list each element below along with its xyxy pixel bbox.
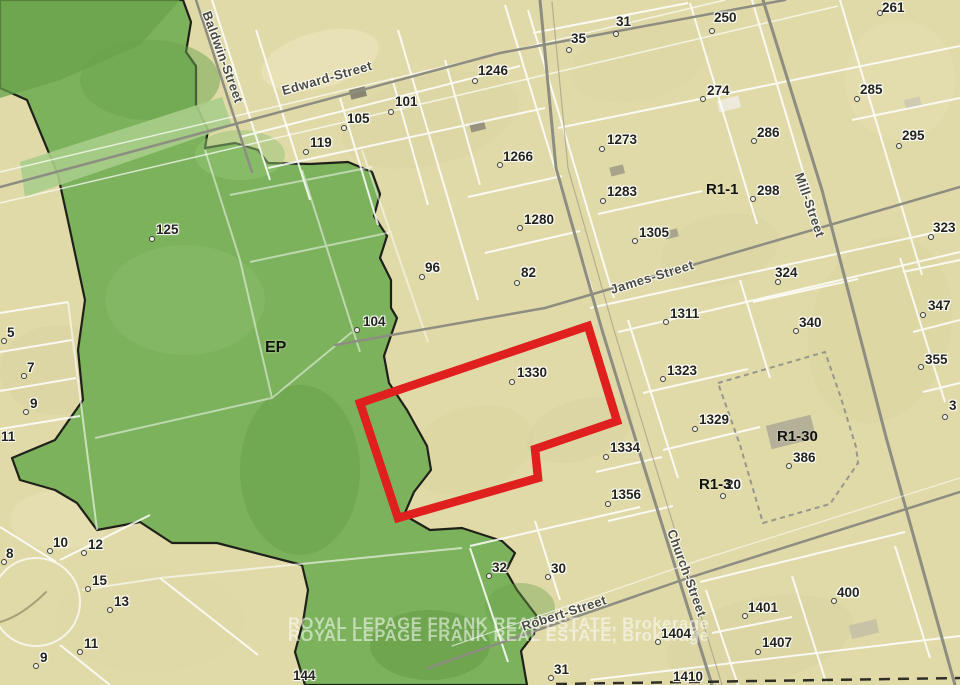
parcel-marker-dot	[107, 607, 113, 613]
parcel-number-10: 10	[53, 536, 68, 550]
parcel-number-1311: 1311	[670, 307, 699, 321]
parcel-number-274: 274	[707, 84, 730, 98]
parcel-marker-dot	[655, 639, 661, 645]
parcel-marker-dot	[896, 143, 902, 149]
parcel-marker-dot	[720, 493, 726, 499]
parcel-number-1329: 1329	[699, 413, 729, 427]
parcel-marker-dot	[23, 409, 29, 415]
parcel-marker-dot	[303, 149, 309, 155]
parcel-number-15: 15	[92, 574, 107, 588]
parcel-marker-dot	[928, 234, 934, 240]
zone-label-r1-3: R1-3	[699, 477, 732, 492]
parcel-number-144: 144	[293, 669, 316, 683]
parcel-number-1404: 1404	[661, 627, 691, 641]
parcel-number-1283: 1283	[607, 185, 637, 199]
parcel-marker-dot	[47, 548, 53, 554]
parcel-marker-dot	[786, 463, 792, 469]
parcel-number-285: 285	[860, 83, 883, 97]
label-layer: ROYAL LEPAGE FRANK REAL ESTATE, Brokerag…	[0, 0, 960, 685]
parcel-marker-dot	[877, 10, 883, 16]
parcel-marker-dot	[942, 414, 948, 420]
parcel-number-1401: 1401	[748, 601, 778, 615]
parcel-marker-dot	[21, 373, 27, 379]
parcel-marker-dot	[599, 146, 605, 152]
parcel-number-324: 324	[775, 266, 798, 280]
parcel-number-298: 298	[757, 184, 780, 198]
parcel-number-3: 3	[949, 399, 957, 413]
parcel-number-9: 9	[40, 651, 48, 665]
parcel-marker-dot	[854, 96, 860, 102]
parcel-marker-dot	[1, 338, 7, 344]
zone-label-r1-30: R1-30	[777, 429, 818, 444]
watermark-line-2: ROYAL LEPAGE FRANK REAL ESTATE, Brokerag…	[288, 628, 709, 645]
parcel-marker-dot	[472, 78, 478, 84]
parcel-number-340: 340	[799, 316, 822, 330]
parcel-marker-dot	[632, 238, 638, 244]
parcel-number-7: 7	[27, 361, 35, 375]
parcel-number-105: 105	[347, 112, 370, 126]
parcel-marker-dot	[603, 454, 609, 460]
parcel-marker-dot	[85, 586, 91, 592]
parcel-number-9: 9	[30, 397, 38, 411]
parcel-number-11: 11	[1, 430, 15, 444]
parcel-marker-dot	[545, 574, 551, 580]
parcel-marker-dot	[514, 280, 520, 286]
parcel-marker-dot	[775, 279, 781, 285]
parcel-marker-dot	[354, 327, 360, 333]
parcel-number-386: 386	[793, 451, 816, 465]
parcel-number-1266: 1266	[503, 150, 533, 164]
parcel-number-1330: 1330	[517, 366, 547, 380]
parcel-marker-dot	[692, 426, 698, 432]
parcel-number-1323: 1323	[667, 364, 697, 378]
map-canvas[interactable]: ROYAL LEPAGE FRANK REAL ESTATE, Brokerag…	[0, 0, 960, 685]
parcel-number-125: 125	[156, 223, 179, 237]
parcel-marker-dot	[388, 109, 394, 115]
street-label-mill-street: Mill-Street	[793, 171, 827, 239]
parcel-marker-dot	[742, 613, 748, 619]
parcel-number-295: 295	[902, 129, 925, 143]
parcel-number-119: 119	[310, 136, 332, 150]
parcel-number-1407: 1407	[762, 636, 792, 650]
parcel-number-13: 13	[114, 595, 129, 609]
parcel-marker-dot	[81, 550, 87, 556]
parcel-marker-dot	[700, 96, 706, 102]
parcel-number-250: 250	[714, 11, 737, 25]
parcel-number-32: 32	[492, 561, 507, 575]
parcel-number-82: 82	[521, 266, 536, 280]
parcel-number-355: 355	[925, 353, 948, 367]
parcel-marker-dot	[341, 125, 347, 131]
parcel-marker-dot	[605, 501, 611, 507]
parcel-marker-dot	[751, 138, 757, 144]
parcel-number-35: 35	[571, 32, 586, 46]
parcel-marker-dot	[709, 28, 715, 34]
parcel-number-1246: 1246	[478, 64, 508, 78]
parcel-number-1305: 1305	[639, 226, 669, 240]
parcel-number-286: 286	[757, 126, 780, 140]
parcel-number-261: 261	[882, 1, 905, 15]
parcel-number-347: 347	[928, 299, 951, 313]
zone-label-ep: EP	[265, 340, 286, 356]
parcel-marker-dot	[149, 236, 155, 242]
parcel-number-1356: 1356	[611, 488, 641, 502]
parcel-marker-dot	[750, 196, 756, 202]
parcel-number-11: 11	[84, 637, 98, 651]
zone-label-r1-1: R1-1	[706, 182, 739, 197]
parcel-marker-dot	[600, 198, 606, 204]
parcel-marker-dot	[613, 31, 619, 37]
parcel-number-104: 104	[363, 315, 386, 329]
parcel-marker-dot	[509, 379, 515, 385]
parcel-number-101: 101	[395, 95, 418, 109]
parcel-marker-dot	[793, 328, 799, 334]
parcel-marker-dot	[831, 598, 837, 604]
parcel-number-12: 12	[88, 538, 103, 552]
parcel-marker-dot	[566, 47, 572, 53]
parcel-number-1273: 1273	[607, 133, 637, 147]
parcel-number-30: 30	[551, 562, 566, 576]
parcel-number-1410: 1410	[673, 670, 703, 684]
parcel-marker-dot	[920, 312, 926, 318]
street-label-church-street: Church-Street	[665, 528, 709, 619]
street-label-edward-street: Edward-Street	[280, 59, 373, 97]
parcel-marker-dot	[517, 225, 523, 231]
parcel-marker-dot	[1, 559, 7, 565]
parcel-number-1334: 1334	[610, 441, 640, 455]
parcel-marker-dot	[660, 376, 666, 382]
parcel-marker-dot	[918, 364, 924, 370]
parcel-marker-dot	[419, 274, 425, 280]
parcel-marker-dot	[77, 649, 83, 655]
parcel-marker-dot	[497, 162, 503, 168]
parcel-number-400: 400	[837, 586, 860, 600]
parcel-number-1280: 1280	[524, 213, 554, 227]
parcel-number-31: 31	[554, 663, 569, 677]
parcel-marker-dot	[33, 663, 39, 669]
parcel-number-31: 31	[616, 15, 631, 29]
parcel-marker-dot	[663, 319, 669, 325]
parcel-marker-dot	[548, 675, 554, 681]
street-label-baldwin-street: Baldwin-Street	[200, 9, 245, 104]
parcel-marker-dot	[486, 573, 492, 579]
parcel-number-323: 323	[933, 221, 956, 235]
parcel-marker-dot	[755, 649, 761, 655]
parcel-number-8: 8	[6, 547, 14, 561]
parcel-number-5: 5	[7, 326, 15, 340]
parcel-number-96: 96	[425, 261, 440, 275]
street-label-james-street: James-Street	[609, 258, 695, 296]
